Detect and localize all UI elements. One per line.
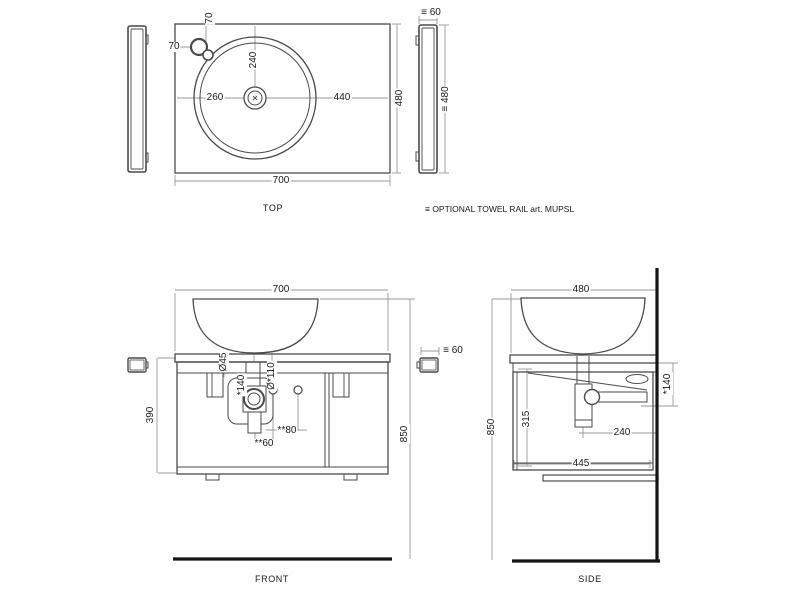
rail-dim-length: ≡ 480 <box>441 85 451 112</box>
front-view-label: FRONT <box>255 574 289 584</box>
front-dim-cabinet-height: 390 <box>146 406 156 425</box>
front-dim-width: 700 <box>272 285 291 295</box>
rail-dim-width-top: ≡ 60 <box>420 8 442 18</box>
towel-rail-note: ≡ OPTIONAL TOWEL RAIL art. MUPSL <box>425 204 574 214</box>
rail-dim-width-front: ≡ 60 <box>442 346 464 356</box>
front-dim-holes-spacing: **80 <box>277 426 298 436</box>
top-dim-center-to-right: 440 <box>333 93 352 103</box>
top-view-label: TOP <box>263 203 283 213</box>
front-dim-drain-to-hole: **60 <box>254 439 275 449</box>
front-dim-hole-diameter: Ø*110 <box>267 361 277 391</box>
top-dim-center-from-left: 260 <box>206 93 225 103</box>
side-dim-depth: 480 <box>572 285 591 295</box>
top-dim-faucet-from-top: 70 <box>205 11 215 24</box>
side-dim-bottom-depth: 445 <box>572 459 591 469</box>
technical-drawing-page: 70 70 240 260 440 480 700 ≡ 60 ≡ 480 TOP… <box>0 0 800 600</box>
side-dim-outlet-drop: *140 <box>663 373 673 396</box>
top-dim-depth: 480 <box>395 89 405 108</box>
front-dim-drain-offset: *140 <box>237 374 247 397</box>
side-dim-total-height: 850 <box>487 418 497 437</box>
side-dim-outlet-from-wall: 240 <box>613 428 632 438</box>
front-dim-drain-diameter: Ø45 <box>219 352 229 373</box>
top-dim-width: 700 <box>272 176 291 186</box>
top-dim-center-from-top: 240 <box>249 51 259 70</box>
front-dim-total-height: 850 <box>400 425 410 444</box>
top-dim-faucet-from-left: 70 <box>167 42 180 52</box>
side-dim-interior-height: 315 <box>522 410 532 429</box>
side-view-label: SIDE <box>578 574 601 584</box>
